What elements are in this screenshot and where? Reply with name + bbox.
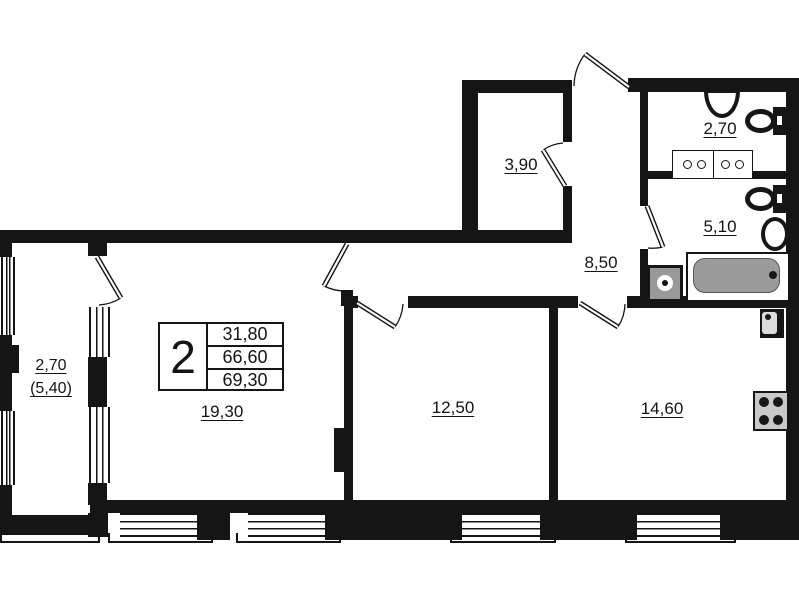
window-living-1: [120, 513, 197, 537]
wall-storage-right-upper: [563, 80, 572, 142]
kitchen-door-arc: [618, 304, 625, 327]
bottom-pier-1: [88, 513, 108, 537]
wall-right-outer: [786, 78, 799, 540]
window-living-2: [248, 513, 325, 537]
window-balcony-block-2: [89, 407, 110, 483]
storage-label: 3,90: [504, 155, 537, 175]
apartment-area-value: 66,60: [208, 347, 282, 370]
window-balcony-block-1: [89, 307, 110, 357]
window-balcony-left-1: [1, 257, 15, 335]
balcony-parapet-corner: [0, 237, 12, 257]
living-door-leaf: [324, 244, 347, 286]
balcony-label-coeff: (5,40): [30, 380, 72, 398]
kitchen-door-leaf: [580, 303, 618, 327]
entrance-door-arc: [574, 54, 585, 86]
window-kitchen: [637, 513, 720, 537]
entrance-door-leaf: [585, 54, 629, 87]
balcony-parapet-bump: [0, 345, 19, 373]
wall-living-bedroom: [344, 290, 353, 512]
storage-door-leaf: [543, 150, 565, 186]
bottom-pier-3: [325, 513, 462, 540]
sill-balcony: [0, 535, 100, 543]
wall-bedroom-kitchen: [549, 308, 558, 508]
floor-plan: 2 31,80 66,60 69,30 19,30 12,50 14,60 8,…: [0, 0, 799, 600]
wall-bath-left-upper: [640, 78, 648, 206]
wall-living-bedroom-pier: [334, 428, 346, 472]
wall-storage-top: [462, 80, 572, 93]
wall-rooms-top-a: [408, 296, 578, 308]
wall-main-top: [0, 230, 572, 243]
wash-basin-icon: [704, 91, 740, 118]
bedroom-label: 12,50: [432, 398, 475, 418]
wall-west-top: [88, 243, 107, 256]
wall-top-right: [628, 78, 799, 92]
living-room-label: 19,30: [201, 402, 244, 422]
bottom-pier-2: [197, 513, 230, 540]
toilet-icon: [745, 109, 776, 133]
wall-bottom-band: [90, 500, 799, 513]
bottom-pier-4: [540, 513, 637, 540]
bathroom-door-arc: [648, 247, 663, 248]
wall-west-mid: [88, 357, 107, 407]
stove-icon: [753, 391, 789, 431]
kitchen-sink-icon: [760, 309, 784, 338]
balcony-door-arc: [99, 298, 121, 305]
bathroom-label: 5,10: [703, 217, 736, 237]
washing-machine-icon: [647, 265, 683, 302]
balcony-label: 2,70: [35, 357, 66, 375]
bedroom-door-leaf: [357, 303, 395, 327]
total-area-value: 69,30: [208, 370, 282, 391]
wc-label: 2,70: [703, 119, 736, 139]
wall-storage-right-lower: [563, 186, 572, 243]
balcony-parapet-bottom: [0, 515, 92, 535]
rooms-count: 2: [160, 324, 208, 389]
double-vanity-icon: [672, 150, 753, 179]
bottom-pier-5: [720, 513, 799, 540]
bathtub-icon: [686, 252, 790, 302]
living-area-value: 31,80: [208, 324, 282, 347]
hallway-label: 8,50: [584, 253, 617, 273]
kitchen-label: 14,60: [641, 399, 684, 419]
window-bedroom: [462, 513, 540, 537]
bathroom-door-leaf: [647, 206, 663, 247]
toilet-icon: [745, 187, 776, 211]
sink-icon: [761, 217, 789, 251]
wall-storage-left: [462, 80, 478, 243]
apartment-legend-table: 2 31,80 66,60 69,30: [158, 322, 284, 391]
bedroom-door-arc: [395, 304, 403, 327]
storage-door-arc: [543, 143, 563, 150]
window-balcony-left-2: [1, 411, 15, 485]
balcony-door-leaf: [97, 257, 121, 298]
